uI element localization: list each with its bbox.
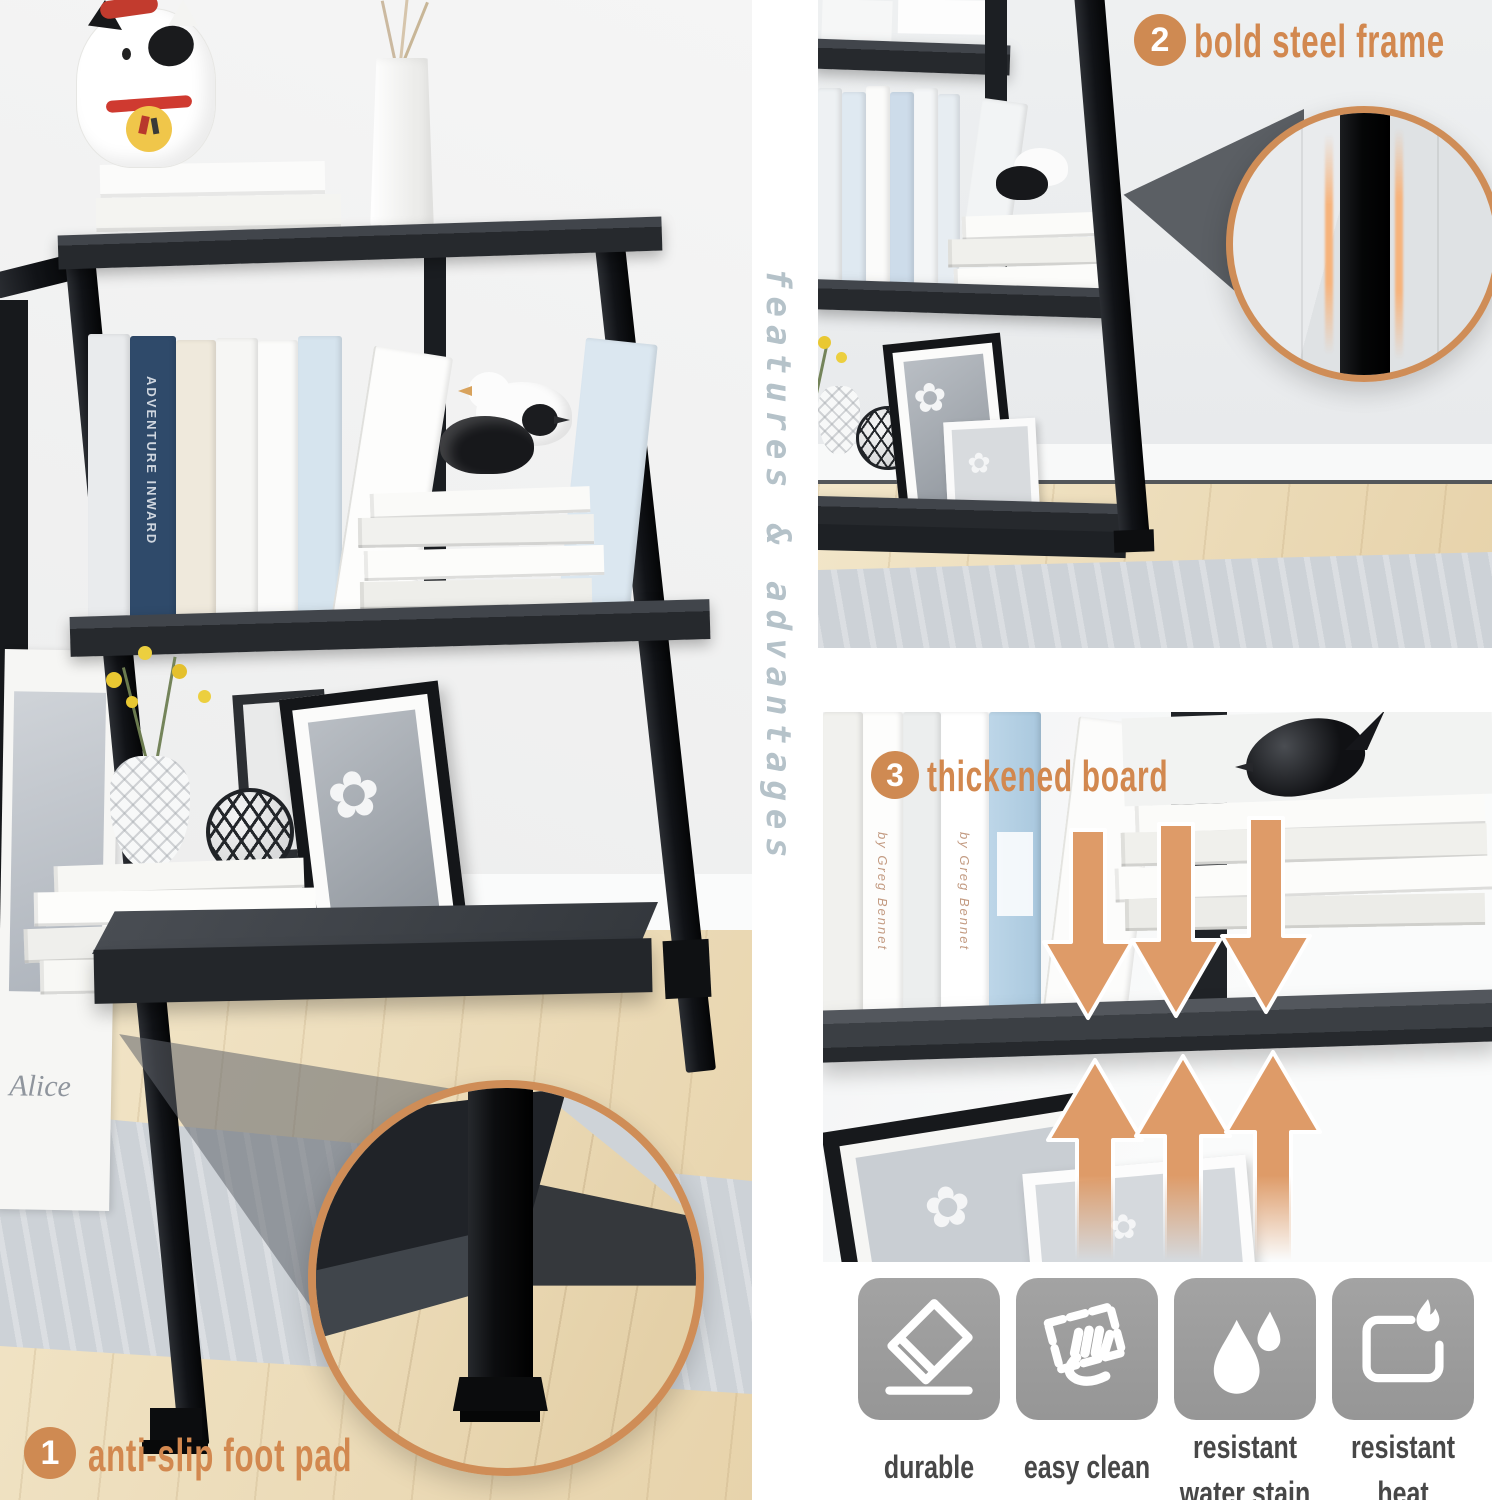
wipe-clean-icon <box>1035 1297 1139 1401</box>
product-feature-collage: Alice ADVEN <box>0 0 1500 1500</box>
flower-stem <box>122 667 149 765</box>
top-book <box>821 0 892 41</box>
top-book <box>898 0 989 35</box>
foot-pad-zoom-inset <box>308 1080 704 1476</box>
flower-bloom <box>818 336 831 349</box>
callout-3-badge: 3 <box>871 751 919 799</box>
lucky-cat-figurine <box>70 0 222 170</box>
tile-caption: resistant heat <box>1302 1424 1500 1500</box>
flower-bloom <box>106 672 122 688</box>
black-bird-head <box>522 404 558 436</box>
stacked-book <box>96 194 342 232</box>
black-bird <box>996 166 1048 200</box>
inset-glow-left <box>1325 113 1333 375</box>
up-arrows <box>1048 1052 1320 1260</box>
tile-durable <box>858 1278 1000 1420</box>
shelf-foot <box>1114 529 1155 552</box>
flower-art-glyph: ✿ <box>323 755 385 836</box>
eraser-icon <box>877 1297 981 1401</box>
caption-line: easy clean <box>1024 1449 1150 1485</box>
inset-seam <box>1301 113 1303 375</box>
inset-steel-tube <box>1340 113 1390 375</box>
flower-art-glyph: ✿ <box>911 374 949 423</box>
poster-title: Alice <box>9 1069 71 1104</box>
flower-bloom <box>138 646 152 660</box>
flower-bloom <box>126 696 138 708</box>
thick-board-photo-panel: by Greg Bennet by Greg Bennet <box>823 712 1492 1262</box>
callout-2-number: 2 <box>1151 21 1170 60</box>
flower-art-glyph: ✿ <box>967 446 992 480</box>
tile-easy-clean <box>1016 1278 1158 1420</box>
black-bird <box>440 416 534 474</box>
flower-bloom <box>198 690 211 703</box>
callout-1-number: 1 <box>41 1434 60 1473</box>
caption-line: resistant <box>1302 1424 1500 1470</box>
book-spine <box>866 86 890 288</box>
callout-2-badge: 2 <box>1134 14 1186 66</box>
book-stack <box>358 490 606 614</box>
white-bird-head <box>468 372 510 410</box>
stacked-book <box>364 545 605 581</box>
cat-badge <box>126 106 172 152</box>
caption-line: heat <box>1302 1470 1500 1500</box>
flame-icon <box>1351 1297 1455 1401</box>
water-drops-icon <box>1193 1297 1297 1401</box>
inset-leg <box>468 1088 533 1384</box>
flower-bloom <box>836 352 847 363</box>
cat-badge-mark <box>151 118 160 135</box>
steel-frame-photo-panel: ✿ ✿ 2 bold steel frame <box>818 0 1492 648</box>
vertical-banner: features & advantages <box>758 268 798 1188</box>
book-spine <box>88 334 130 624</box>
down-arrows <box>1044 818 1310 1018</box>
bird-figurines <box>430 372 590 498</box>
stacked-book <box>948 237 1114 268</box>
shelf-right-foot <box>663 939 712 999</box>
book-spine <box>818 88 842 288</box>
flower-bloom <box>172 664 187 679</box>
tile-heat-resistant <box>1332 1278 1474 1420</box>
callout-3-number: 3 <box>886 757 904 794</box>
caption-line: durable <box>884 1449 974 1485</box>
callout-1-badge: 1 <box>24 1427 76 1479</box>
book-spine <box>890 92 914 288</box>
callout-2-label: bold steel frame <box>1194 16 1445 66</box>
callout-3-label: thickened board <box>927 754 1168 800</box>
stacked-book <box>358 514 594 548</box>
tile-water-resistant <box>1174 1278 1316 1420</box>
inset-glow-right <box>1395 113 1403 375</box>
cat-badge-mark <box>138 115 150 134</box>
book-spine <box>176 340 216 624</box>
inset-foot-base <box>460 1411 540 1422</box>
book-spine-navy: ADVENTURE INWARD <box>130 336 176 624</box>
left-photo-panel: Alice ADVEN <box>0 0 752 1500</box>
book-spine <box>842 92 866 288</box>
book-spine <box>216 338 258 624</box>
inset-seam <box>1437 113 1439 375</box>
book-spine-title: ADVENTURE INWARD <box>144 376 159 545</box>
steel-frame-zoom-inset <box>1226 106 1492 382</box>
inset-foot-pad <box>453 1377 548 1411</box>
white-vase <box>370 58 434 232</box>
book-spine <box>914 88 938 288</box>
book-spine <box>298 336 342 624</box>
white-bird-beak <box>458 386 472 396</box>
yellow-flowers <box>86 636 246 772</box>
callout-1-label: anti-slip foot pad <box>88 1432 352 1478</box>
vertical-banner-text: features & advantages <box>758 268 798 866</box>
cat-eye <box>122 48 131 60</box>
book-spine <box>258 340 298 624</box>
